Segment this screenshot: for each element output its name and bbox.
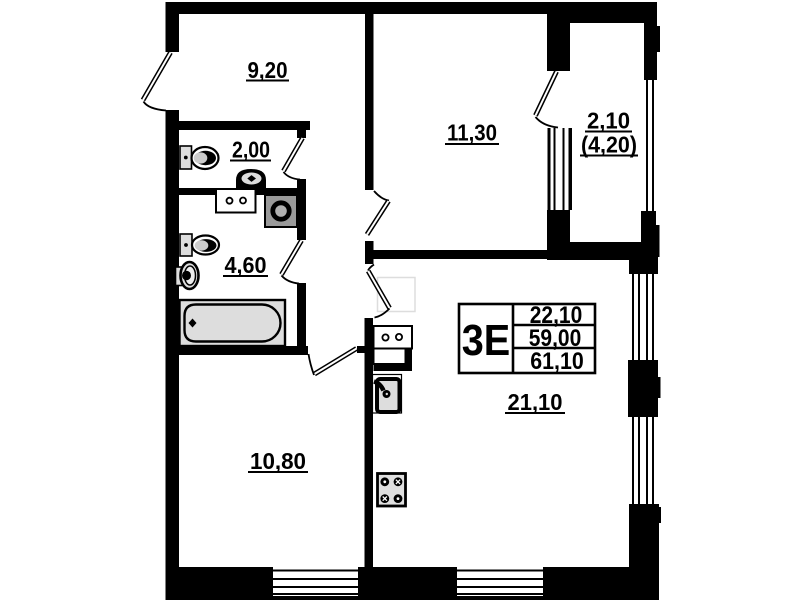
svg-text:9,20: 9,20 [248, 57, 288, 83]
svg-text:(4,20): (4,20) [581, 132, 637, 158]
svg-text:21,10: 21,10 [508, 389, 563, 415]
svg-text:10,80: 10,80 [250, 448, 306, 474]
svg-text:4,60: 4,60 [225, 252, 267, 278]
svg-text:61,10: 61,10 [530, 348, 584, 375]
svg-text:2,10: 2,10 [587, 108, 630, 134]
svg-text:2,00: 2,00 [232, 137, 270, 163]
svg-text:3Е: 3Е [462, 316, 511, 365]
svg-text:11,30: 11,30 [447, 120, 497, 146]
